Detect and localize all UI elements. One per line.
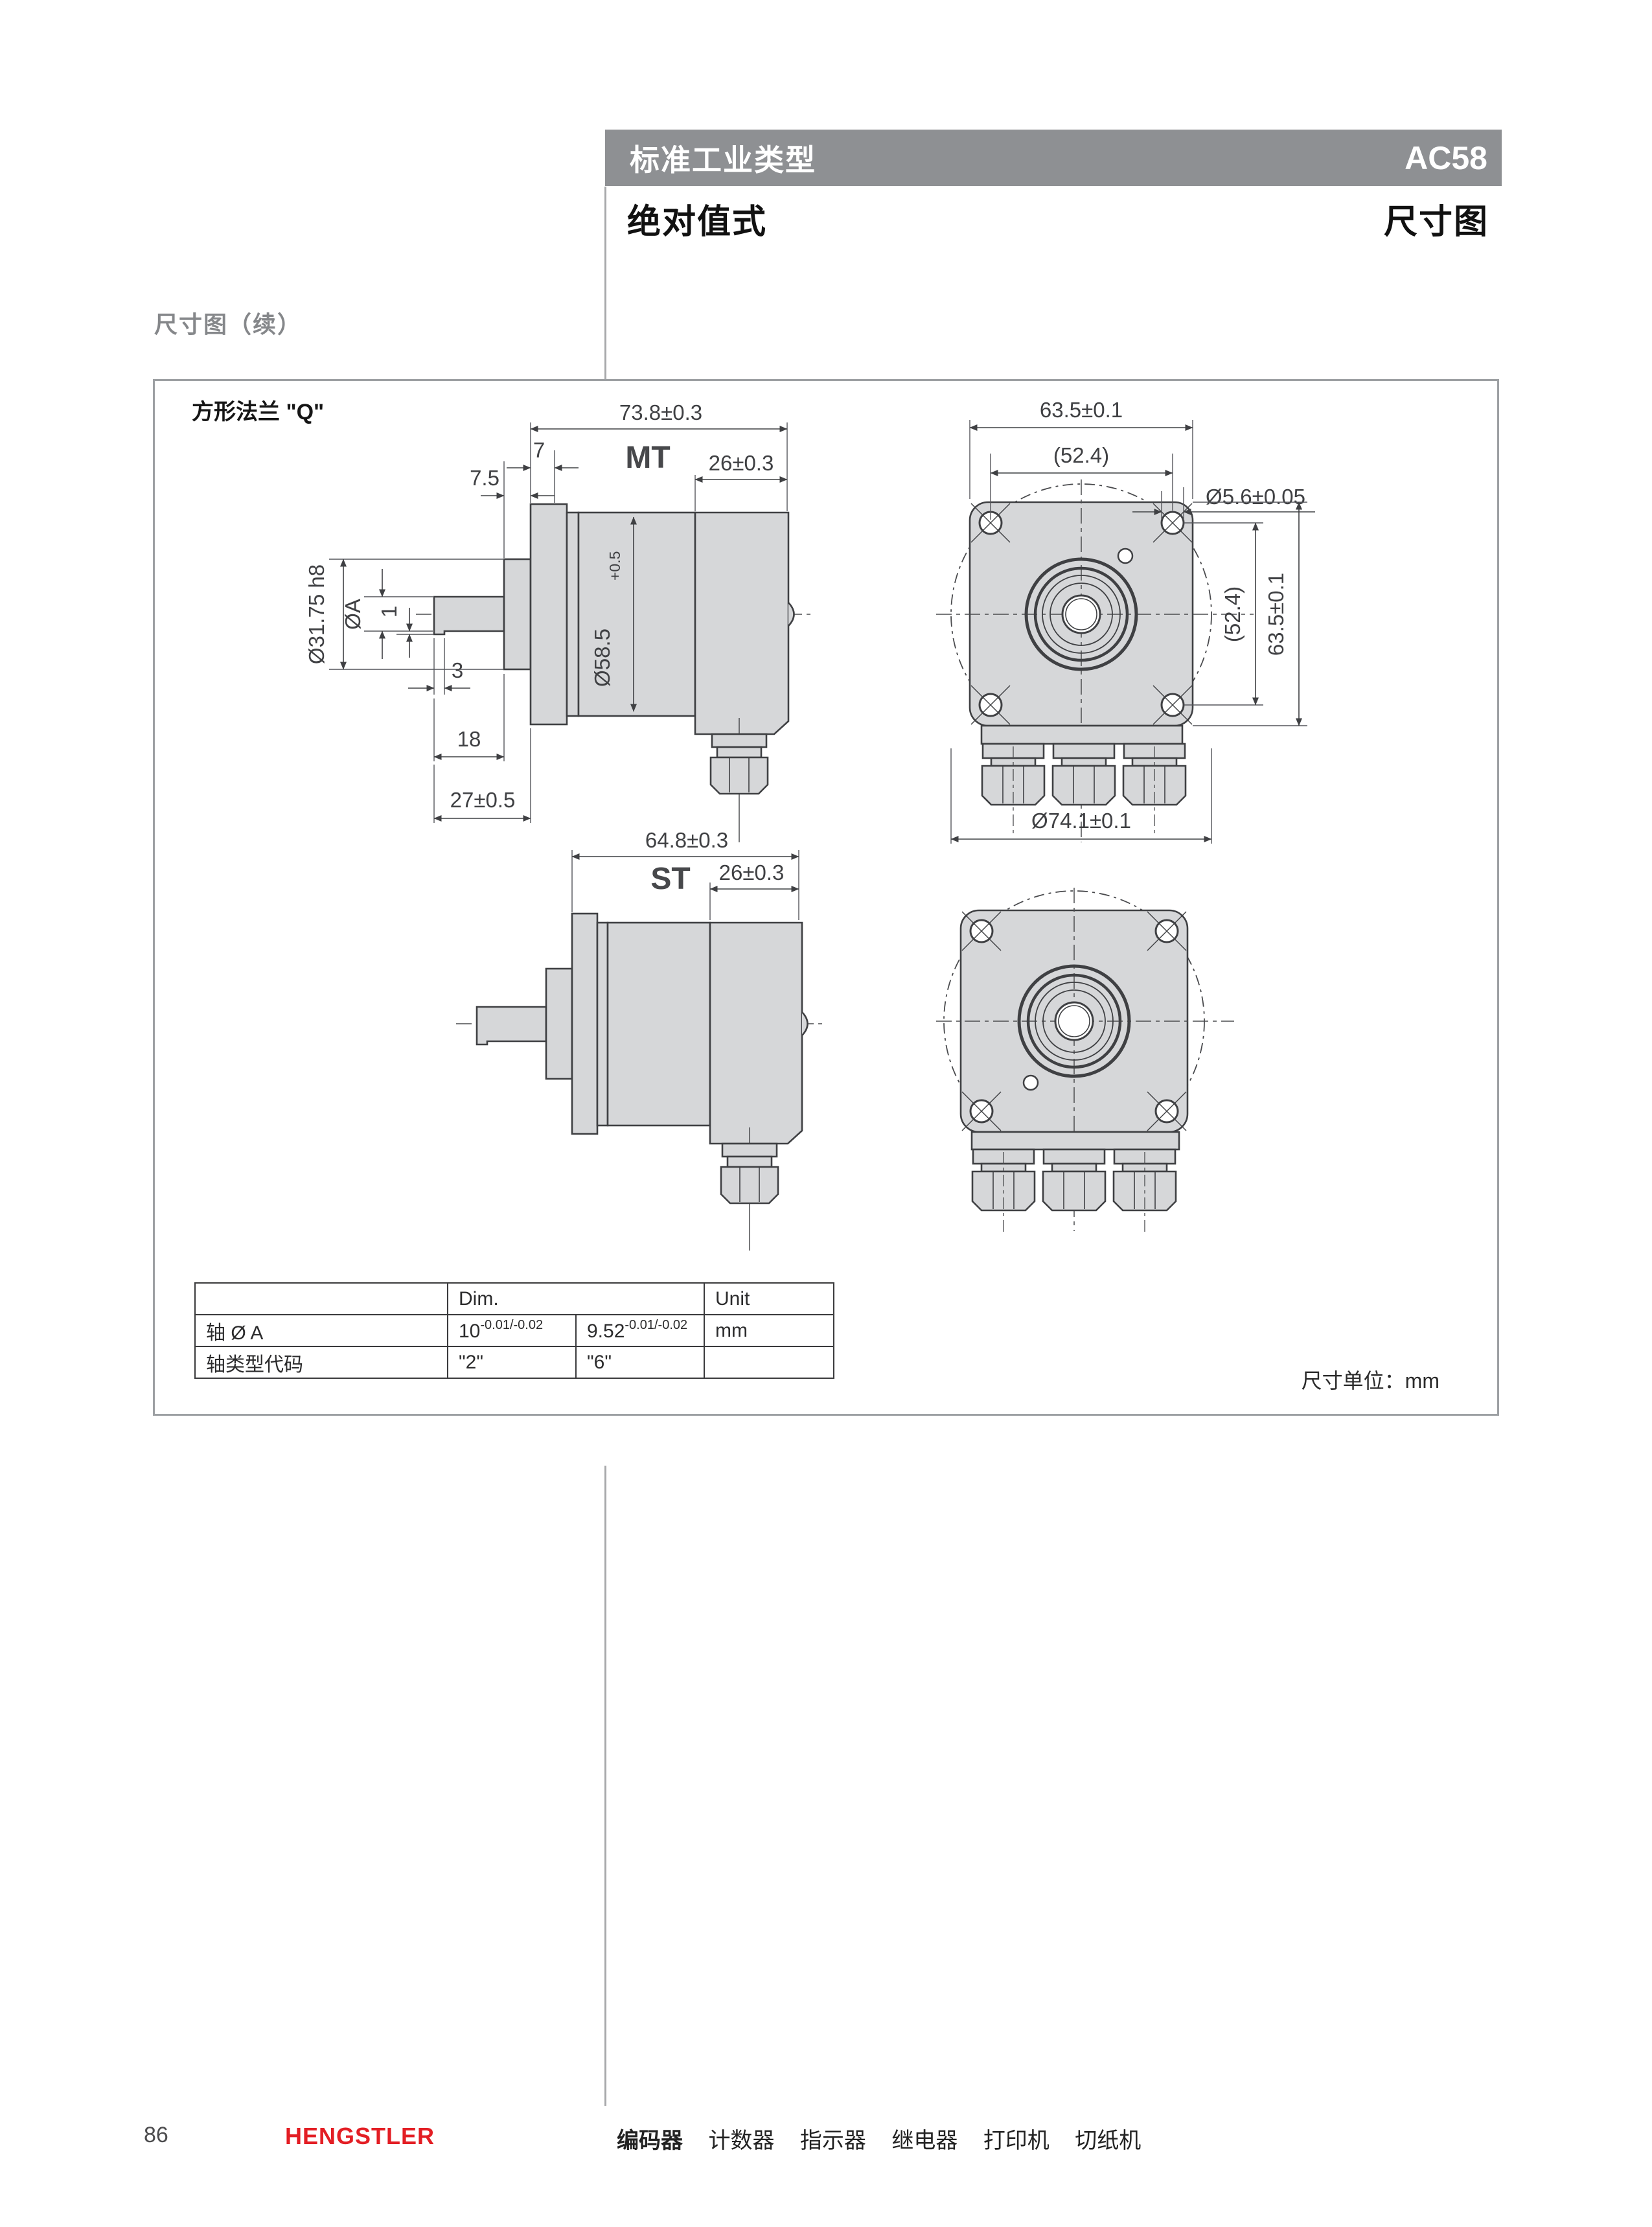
- product-line-list: 编码器 计数器 指示器 继电器 打印机 切纸机: [617, 2123, 1160, 2154]
- vertical-rule-top: [604, 187, 606, 379]
- row-label: 轴 Ø A: [195, 1315, 448, 1346]
- value-tolerance: -0.01/-0.02: [480, 1318, 543, 1332]
- table-header-row: Dim. Unit: [195, 1283, 834, 1315]
- catalog-page: 73.8±0.3 MT 7 7.5 26±0.3 Ø58.5 +0.5 Ø31: [0, 0, 1652, 2227]
- value-base: 9.52: [587, 1321, 625, 1342]
- row-label: 轴类型代码: [195, 1346, 448, 1378]
- page-number: 86: [144, 2123, 168, 2148]
- shaft-code-option-2: "6": [576, 1346, 704, 1378]
- brand-logo: HENGSTLER: [285, 2123, 435, 2150]
- header-bar: 标准工业类型 AC58: [605, 130, 1502, 186]
- shaft-dia-option-1: 10-0.01/-0.02: [448, 1315, 576, 1346]
- subtitle-right: 尺寸图: [1384, 194, 1489, 243]
- product-line-item: 指示器: [800, 2129, 866, 2153]
- table-row-shaft-diameter: 轴 Ø A 10-0.01/-0.02 9.52-0.01/-0.02 mm: [195, 1315, 834, 1346]
- product-code: AC58: [1405, 139, 1487, 177]
- subtitle-left: 绝对值式: [627, 194, 767, 243]
- product-line-item: 计数器: [708, 2129, 774, 2153]
- section-title: 尺寸图（续）: [154, 306, 302, 340]
- table-row-shaft-type-code: 轴类型代码 "2" "6": [195, 1346, 834, 1378]
- product-line-item: 切纸机: [1075, 2129, 1141, 2153]
- shaft-dimension-table: Dim. Unit 轴 Ø A 10-0.01/-0.02 9.52-0.01/…: [194, 1282, 834, 1379]
- product-line-item: 编码器: [617, 2129, 683, 2153]
- vertical-rule-bottom: [604, 1466, 606, 2106]
- value-base: 10: [459, 1321, 480, 1342]
- empty-cell: [704, 1346, 834, 1378]
- header-category: 标准工业类型: [630, 137, 816, 179]
- product-line-item: 继电器: [891, 2129, 958, 2153]
- unit-note: 尺寸单位：mm: [1302, 1365, 1440, 1394]
- value-tolerance: -0.01/-0.02: [625, 1318, 687, 1332]
- shaft-code-option-1: "2": [448, 1346, 576, 1378]
- table-cell-empty: [195, 1283, 448, 1315]
- unit-cell: mm: [704, 1315, 834, 1346]
- table-header-dim: Dim.: [448, 1283, 704, 1315]
- product-line-item: 打印机: [983, 2129, 1050, 2153]
- table-header-unit: Unit: [704, 1283, 834, 1315]
- figure-box: [153, 379, 1499, 1416]
- figure-title: 方形法兰 "Q": [192, 394, 324, 426]
- shaft-dia-option-2: 9.52-0.01/-0.02: [576, 1315, 704, 1346]
